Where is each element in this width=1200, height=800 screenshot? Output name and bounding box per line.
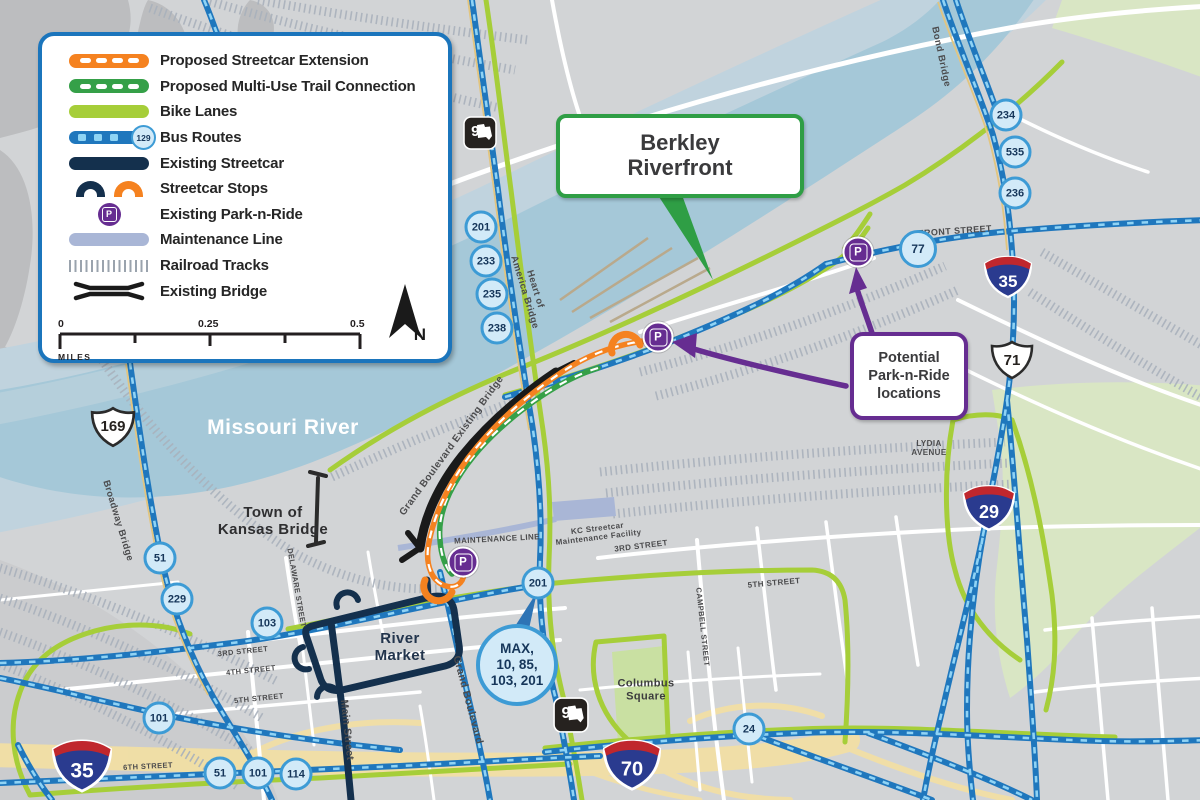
legend-item-proposed-streetcar: Proposed Streetcar Extension	[58, 48, 448, 74]
park-n-ride-icon: P	[98, 203, 121, 226]
label-town-of-kansas-bridge: Town of Kansas Bridge	[218, 504, 328, 539]
bus-route-badge: 101	[143, 702, 176, 735]
bus-route-badge: 235	[476, 278, 509, 311]
maintenance-line-swatch	[69, 233, 149, 246]
bus-route-badge: 236	[999, 177, 1032, 210]
legend-item-existing-streetcar: Existing Streetcar	[58, 150, 448, 176]
bus-route-badge: 77	[899, 230, 937, 268]
callout-text: locations	[877, 385, 941, 403]
interstate-shield-35: 35	[983, 255, 1033, 299]
label-lydia-avenue: LYDIA AVENUE	[911, 439, 946, 457]
bus-route-badge: 201	[522, 567, 555, 600]
bus-route-badge: 51	[204, 757, 237, 790]
legend-item-proposed-trail: Proposed Multi-Use Trail Connection	[58, 74, 448, 100]
legend-item-railroad-tracks: Railroad Tracks	[58, 253, 448, 279]
interstate-shield-35-southwest: 35	[51, 739, 113, 794]
streetcar-stop-orange-icon	[114, 181, 143, 197]
railroad-tracks-swatch	[69, 260, 149, 272]
label-missouri-river: Missouri River	[207, 416, 359, 440]
existing-streetcar-swatch	[69, 157, 149, 170]
legend-item-bus-routes: 129 Bus Routes	[58, 125, 448, 151]
bike-lanes-swatch	[69, 105, 149, 118]
streetcar-stop-navy-icon	[76, 181, 105, 197]
north-arrow: N	[384, 283, 426, 347]
bus-route-badge: 233	[470, 245, 503, 278]
max-badge-line: MAX,	[500, 641, 534, 657]
park-n-ride-marker-riverfront: P	[643, 322, 674, 353]
existing-bridge-icon	[70, 281, 148, 301]
bus-route-badge: 201	[465, 211, 498, 244]
transit-map: Missouri River Town of Kansas Bridge Riv…	[0, 0, 1200, 800]
label-river-market: River Market	[375, 630, 426, 665]
missouri-route-shield-9-north: 9	[463, 116, 497, 150]
bus-routes-swatch: 129	[69, 131, 149, 144]
interstate-shield-29: 29	[962, 484, 1016, 532]
proposed-trail-swatch	[69, 79, 149, 93]
label-columbus-square: Columbus Square	[618, 677, 675, 702]
callout-text: Berkley	[640, 131, 720, 156]
bus-route-badge: 101	[242, 757, 275, 790]
callout-text: Potential	[878, 349, 939, 367]
park-n-ride-marker-river-market: P	[448, 547, 479, 578]
missouri-route-shield-9-south: 9	[553, 697, 589, 733]
scale-bar: 0 0.25 0.5 MILES	[58, 318, 368, 366]
callout-text: Riverfront	[627, 156, 732, 181]
park-n-ride-icon: P	[849, 243, 867, 261]
bus-route-badge: 114	[280, 758, 313, 791]
bus-route-badge: 129	[131, 125, 156, 150]
legend-item-maintenance-line: Maintenance Line	[58, 227, 448, 253]
legend-item-bike-lanes: Bike Lanes	[58, 99, 448, 125]
bus-route-badge: 234	[990, 99, 1023, 132]
bus-route-badge: 229	[161, 583, 194, 616]
legend-item-streetcar-stops: Streetcar Stops	[58, 176, 448, 202]
scale-bar-ticks	[58, 331, 368, 353]
proposed-streetcar-swatch	[69, 54, 149, 68]
callout-berkley-riverfront: Berkley Riverfront	[556, 114, 804, 198]
legend-item-park-n-ride: P Existing Park-n-Ride	[58, 202, 448, 228]
us-route-shield-71: 71	[989, 339, 1035, 381]
park-n-ride-icon: P	[649, 328, 667, 346]
interstate-shield-70: 70	[602, 739, 662, 792]
bus-route-badge: 238	[481, 312, 514, 345]
us-route-shield-169: 169	[89, 405, 137, 449]
max-badge-line: 103, 201	[491, 673, 544, 689]
bus-route-badge: 103	[251, 607, 284, 640]
callout-potential-park-n-ride: Potential Park-n-Ride locations	[850, 332, 968, 420]
max-badge-line: 10, 85,	[496, 657, 537, 673]
park-n-ride-marker-front-street: P	[843, 237, 874, 268]
park-n-ride-icon: P	[454, 553, 472, 571]
bus-route-badge: 24	[733, 713, 766, 746]
bus-routes-max-badge: MAX, 10, 85, 103, 201	[476, 624, 558, 706]
bus-route-badge: 535	[999, 136, 1032, 169]
bus-route-badge: 51	[144, 542, 177, 575]
callout-text: Park-n-Ride	[868, 367, 949, 385]
legend: Proposed Streetcar Extension Proposed Mu…	[38, 32, 452, 363]
